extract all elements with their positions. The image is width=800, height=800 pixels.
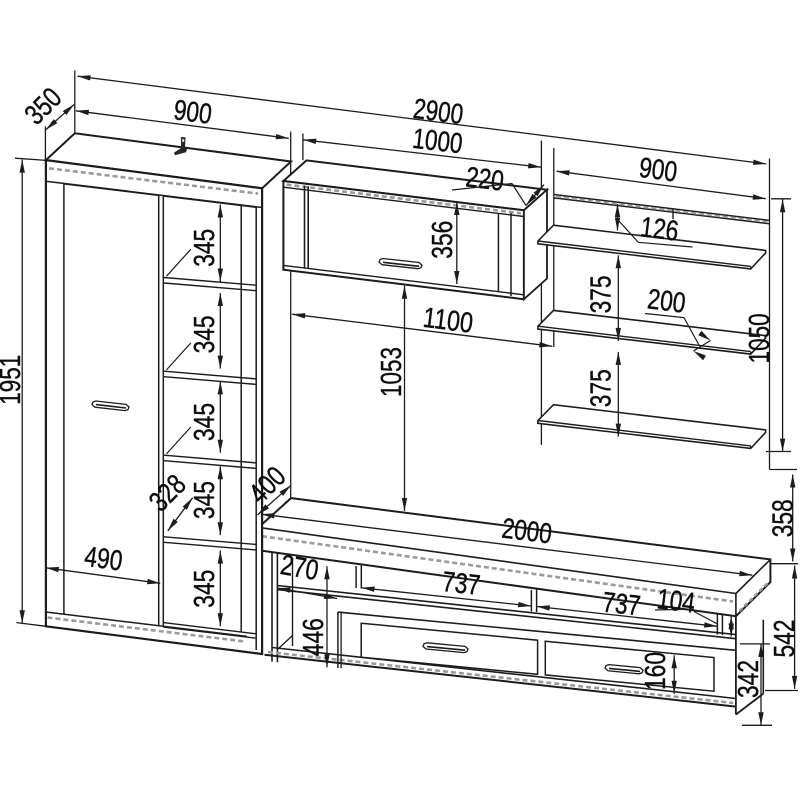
svg-text:1053: 1053 <box>376 347 408 397</box>
svg-text:1000: 1000 <box>411 123 464 161</box>
svg-text:1951: 1951 <box>0 355 27 405</box>
svg-text:900: 900 <box>172 94 214 131</box>
svg-text:342: 342 <box>733 660 765 698</box>
svg-text:358: 358 <box>768 499 800 537</box>
svg-text:345: 345 <box>189 229 221 267</box>
svg-text:1100: 1100 <box>421 302 475 340</box>
svg-text:345: 345 <box>189 315 221 353</box>
svg-text:104: 104 <box>655 583 697 619</box>
svg-text:737: 737 <box>441 566 482 602</box>
svg-text:375: 375 <box>586 369 618 407</box>
svg-text:490: 490 <box>82 541 124 578</box>
svg-text:345: 345 <box>189 570 221 608</box>
svg-text:160: 160 <box>640 652 672 690</box>
svg-text:126: 126 <box>639 211 681 247</box>
svg-text:270: 270 <box>278 549 321 587</box>
svg-text:900: 900 <box>637 152 679 189</box>
svg-text:345: 345 <box>189 403 221 441</box>
svg-text:345: 345 <box>189 481 221 519</box>
svg-text:2000: 2000 <box>500 513 554 551</box>
svg-text:737: 737 <box>601 587 642 623</box>
svg-text:1050: 1050 <box>744 313 776 363</box>
svg-text:220: 220 <box>464 161 506 197</box>
svg-text:375: 375 <box>586 275 618 313</box>
svg-text:356: 356 <box>427 221 459 259</box>
svg-text:446: 446 <box>298 618 330 656</box>
svg-text:542: 542 <box>769 620 800 658</box>
